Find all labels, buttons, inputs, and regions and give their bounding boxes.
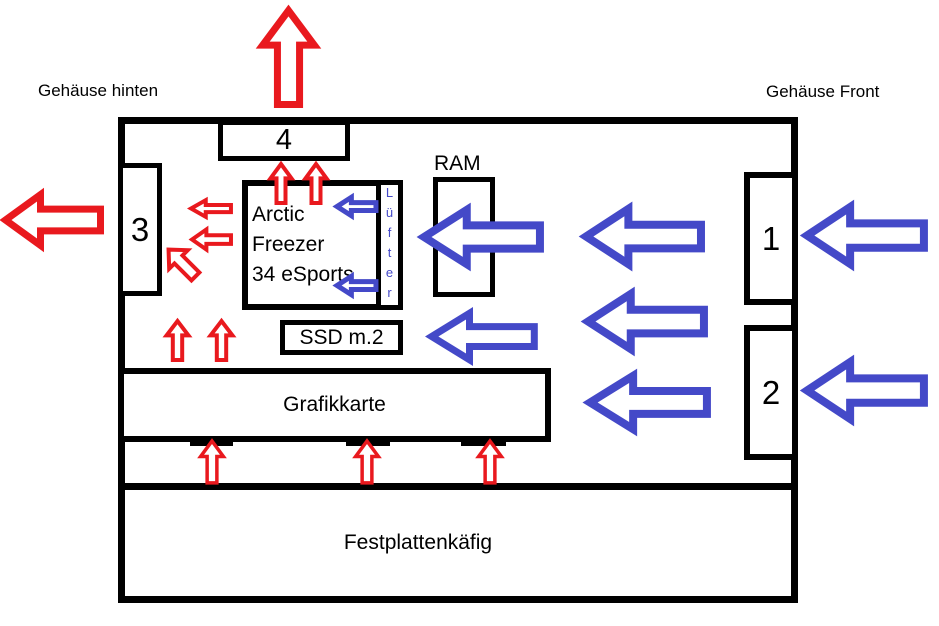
ssd-m2-label: SSD m.2 xyxy=(299,326,383,350)
hdd-cage-label: Festplattenkäfig xyxy=(344,531,492,555)
intake-airflow-arrow-gpu-icon xyxy=(587,372,710,433)
front-intake-arrow-fan1-icon xyxy=(804,203,927,268)
rear-exhaust-arrow-icon xyxy=(3,191,103,249)
cooler-to-topfan-arrow-1-icon xyxy=(269,163,293,204)
intake-airflow-arrow-row2-icon xyxy=(585,290,707,353)
top-exhaust-arrow-icon xyxy=(259,8,318,107)
fan-3-label: 3 xyxy=(131,211,149,249)
intake-airflow-arrow-row1-icon xyxy=(583,205,704,268)
fan-2-label: 2 xyxy=(762,374,780,412)
hdd-cage: Festplattenkäfig xyxy=(118,483,798,603)
fan-4-label: 4 xyxy=(276,124,292,157)
cooler-exhaust-arrow-1-icon xyxy=(190,199,232,218)
gpu-fan-arrow-1-icon xyxy=(199,440,225,484)
cooler-exhaust-arrow-2-icon xyxy=(191,228,232,251)
cpu-cooler-fan-strip: Lüfter xyxy=(376,180,403,310)
case-rear-label: Gehäuse hinten xyxy=(38,81,158,101)
pc-airflow-diagram: Gehäuse hinten Gehäuse Front Festplatten… xyxy=(0,0,939,626)
rising-air-arrow-1-icon xyxy=(165,320,190,361)
ssd-m2: SSD m.2 xyxy=(280,320,403,355)
fan-2-front-lower: 2 xyxy=(744,325,798,460)
cooler-intake-arrow-bottom-icon xyxy=(336,275,377,296)
case-front-label: Gehäuse Front xyxy=(766,82,879,102)
graphics-card: Grafikkarte xyxy=(118,368,551,442)
cpu-cooler-fan-label: Lüfter xyxy=(383,185,396,305)
gpu-fan-arrow-2-icon xyxy=(354,440,380,484)
ram-label: RAM xyxy=(434,152,481,176)
fan-1-front-upper: 1 xyxy=(744,172,798,305)
fan-3-rear: 3 xyxy=(118,163,162,296)
gpu-fan-arrow-3-icon xyxy=(477,440,503,484)
intake-airflow-arrow-ssd-icon xyxy=(429,310,537,363)
front-intake-arrow-fan2-icon xyxy=(804,358,927,423)
cooler-to-topfan-arrow-2-icon xyxy=(304,163,328,204)
graphics-card-label: Grafikkarte xyxy=(283,393,386,417)
cooler-intake-arrow-top-icon xyxy=(336,196,377,217)
intake-airflow-arrow-ram-icon xyxy=(421,206,543,268)
fan-4-top: 4 xyxy=(218,120,350,161)
rising-air-arrow-2-icon xyxy=(209,320,234,361)
fan-1-label: 1 xyxy=(762,220,780,258)
